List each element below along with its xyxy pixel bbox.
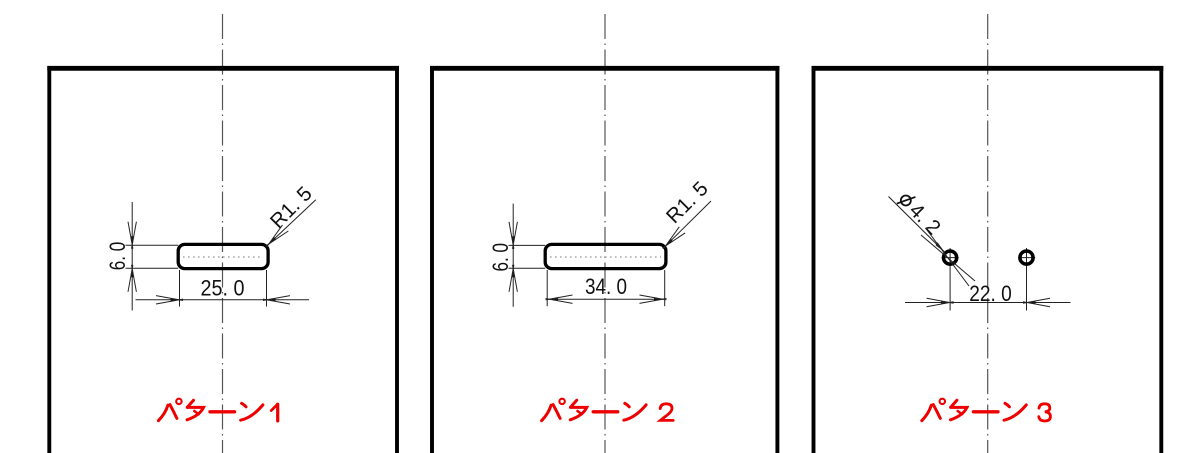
svg-text:6. 0: 6. 0 [488,243,513,272]
svg-text:22. 0: 22. 0 [969,281,1012,306]
svg-text:R1. 5: R1. 5 [662,177,713,228]
svg-text:34. 0: 34. 0 [585,274,627,299]
svg-text:6. 0: 6. 0 [105,242,130,271]
svg-text:4. 2: 4. 2 [905,199,945,239]
svg-text:R1. 5: R1. 5 [266,182,317,233]
svg-text:25. 0: 25. 0 [201,275,245,300]
